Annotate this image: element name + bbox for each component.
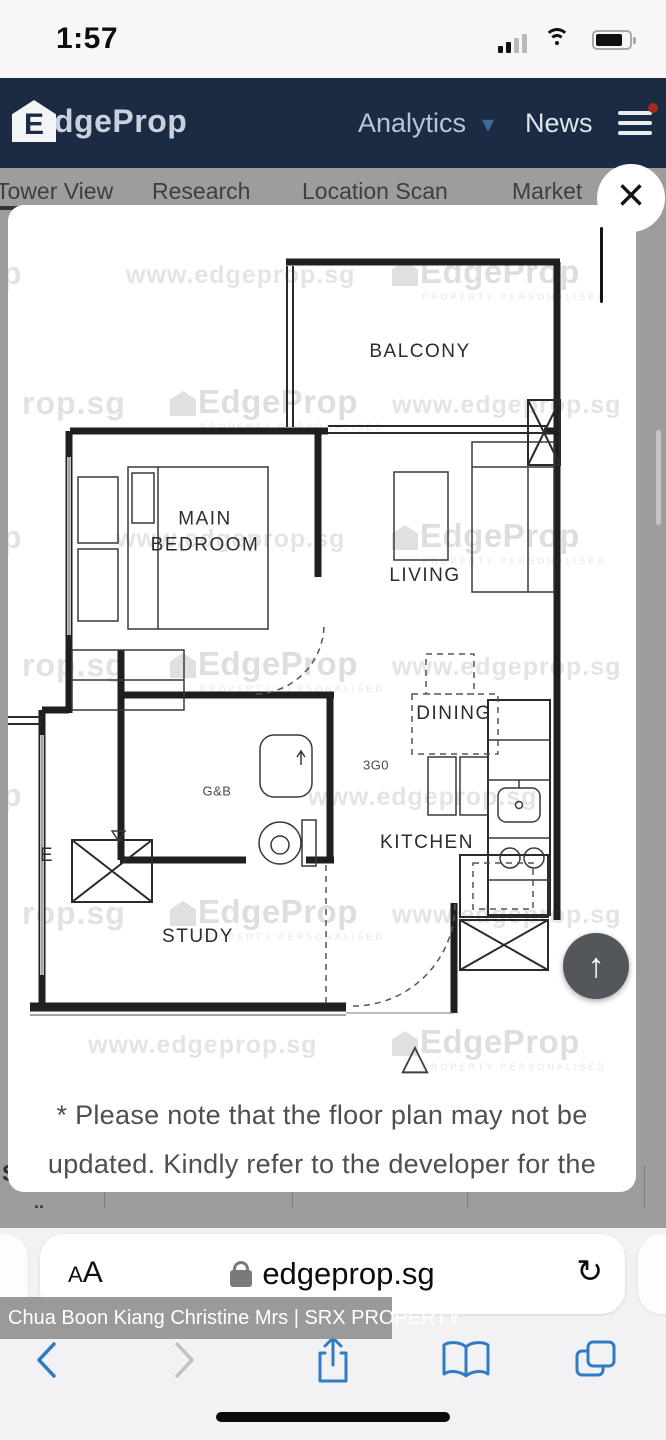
nav-news[interactable]: News bbox=[525, 108, 593, 139]
logo-text: dgeProp bbox=[54, 103, 187, 140]
room-label-bath: G&B bbox=[203, 784, 232, 799]
tab-location-scan[interactable]: Location Scan bbox=[302, 178, 448, 205]
room-label-study: STUDY bbox=[162, 926, 234, 948]
room-label-utility: 3G0 bbox=[363, 758, 389, 773]
url-text[interactable]: edgeprop.sg bbox=[262, 1256, 434, 1292]
floor-plan-modal: p www.edgeprop.sg EdgePropPROPERTY PERSO… bbox=[8, 205, 636, 1192]
scroll-to-top-button[interactable]: ↑ bbox=[563, 933, 629, 999]
edgeprop-logo[interactable]: E dgeProp bbox=[12, 100, 187, 142]
wifi-icon bbox=[544, 28, 574, 52]
share-button[interactable] bbox=[303, 1330, 363, 1390]
back-button[interactable] bbox=[16, 1330, 76, 1390]
agent-banner: Chua Boon Kiang Christine Mrs | SRX PROP… bbox=[0, 1297, 392, 1339]
house-logo-icon: E bbox=[12, 100, 56, 142]
modal-close-button[interactable]: × bbox=[597, 164, 665, 232]
bookmarks-button[interactable] bbox=[436, 1330, 496, 1390]
room-label-living: LIVING bbox=[389, 565, 460, 587]
room-label-dining: DINING bbox=[416, 703, 492, 725]
room-label-main-bedroom: MAIN BEDROOM bbox=[135, 506, 275, 557]
close-icon: × bbox=[617, 172, 645, 220]
forward-button[interactable] bbox=[155, 1330, 215, 1390]
lock-icon bbox=[230, 1270, 252, 1287]
hamburger-menu-icon[interactable] bbox=[618, 111, 652, 137]
disclaimer-line-1: * Please note that the floor plan may no… bbox=[8, 1100, 636, 1131]
next-tab-peek[interactable] bbox=[638, 1234, 666, 1314]
tab-tower-view[interactable]: Tower View bbox=[0, 178, 113, 205]
clock-time: 1:57 bbox=[56, 22, 118, 56]
reload-button[interactable]: ↻ bbox=[576, 1252, 603, 1290]
tabs-button[interactable] bbox=[566, 1330, 626, 1390]
status-bar: 1:57 bbox=[0, 0, 666, 78]
iphone-screen: 1:57 E dgeProp Analytics ▾ News Tower Vi… bbox=[0, 0, 666, 1440]
room-label-balcony: BALCONY bbox=[369, 341, 470, 363]
stray-letter-label: E bbox=[40, 845, 54, 867]
page-scrollbar[interactable] bbox=[656, 430, 661, 525]
agent-banner-text: Chua Boon Kiang Christine Mrs | SRX PROP… bbox=[0, 1307, 461, 1330]
tab-research[interactable]: Research bbox=[152, 178, 250, 205]
arrow-up-icon: ↑ bbox=[588, 949, 605, 983]
entrance-marker-icon: △ bbox=[401, 1036, 429, 1078]
chevron-down-icon: ▾ bbox=[482, 110, 494, 139]
battery-icon bbox=[592, 30, 632, 50]
edgeprop-header: E dgeProp Analytics ▾ News bbox=[0, 78, 666, 168]
storey-sub: .. bbox=[34, 1192, 44, 1213]
room-label-kitchen: KITCHEN bbox=[380, 832, 474, 854]
tab-market[interactable]: Market bbox=[512, 178, 582, 205]
home-indicator[interactable] bbox=[216, 1412, 450, 1422]
nav-analytics[interactable]: Analytics bbox=[358, 108, 466, 139]
disclaimer-line-2: updated. Kindly refer to the developer f… bbox=[8, 1149, 636, 1180]
floor-plan-drawing bbox=[8, 205, 636, 1105]
cellular-signal-icon bbox=[498, 34, 527, 53]
notification-dot bbox=[648, 103, 658, 113]
